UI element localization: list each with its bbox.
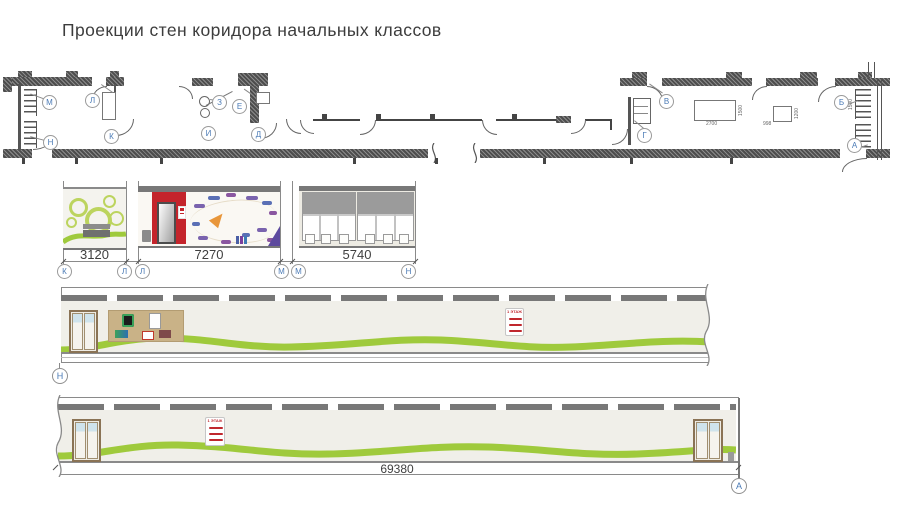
bin xyxy=(728,452,734,461)
page: Проекции стен коридора начальных классов xyxy=(0,0,900,506)
axis-marker: А xyxy=(731,478,747,494)
frame-line xyxy=(55,397,739,398)
dim-text: 69380 xyxy=(55,462,739,476)
double-door xyxy=(693,419,723,462)
door-leaf xyxy=(87,422,98,459)
door-leaf xyxy=(709,422,721,459)
sign-arrow xyxy=(209,439,223,441)
green-wave xyxy=(58,438,736,462)
sign-arrow xyxy=(209,427,223,429)
floor-sign: 1 ЭТАЖ xyxy=(205,417,225,446)
door-leaf xyxy=(696,422,708,459)
floor-sign-label: 1 ЭТАЖ xyxy=(206,418,224,424)
corridor-elevation-lower: 1 ЭТАЖ 69380 А xyxy=(0,0,900,506)
sign-arrow xyxy=(209,433,223,435)
double-door xyxy=(72,419,101,462)
door-leaf xyxy=(75,422,86,459)
